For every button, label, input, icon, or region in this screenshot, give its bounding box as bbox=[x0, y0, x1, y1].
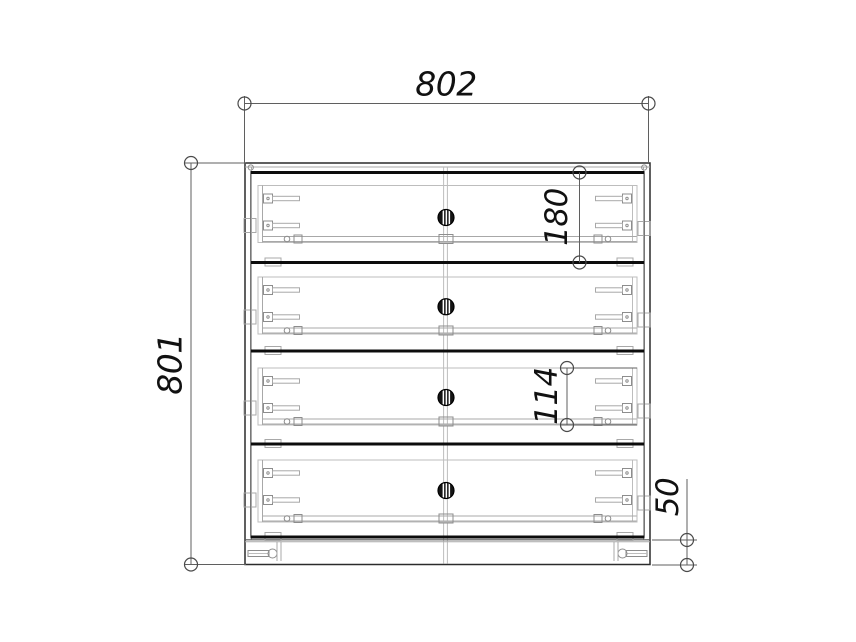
base-height-label: 50 bbox=[650, 478, 686, 516]
drawer-box-height-label: 114 bbox=[529, 367, 565, 425]
overall-height-label: 801 bbox=[151, 333, 190, 395]
dimension-base-height: 50 bbox=[650, 478, 697, 572]
overall-width-label: 802 bbox=[415, 65, 477, 104]
dimension-overall-height: 801 bbox=[151, 157, 246, 572]
technical-drawing-page: 802 801 180 114 50 bbox=[0, 0, 856, 642]
technical-drawing-canvas: 802 801 180 114 50 bbox=[0, 0, 856, 642]
drawer-front-height-label: 180 bbox=[539, 188, 575, 246]
dimension-overall-width: 802 bbox=[238, 65, 655, 163]
